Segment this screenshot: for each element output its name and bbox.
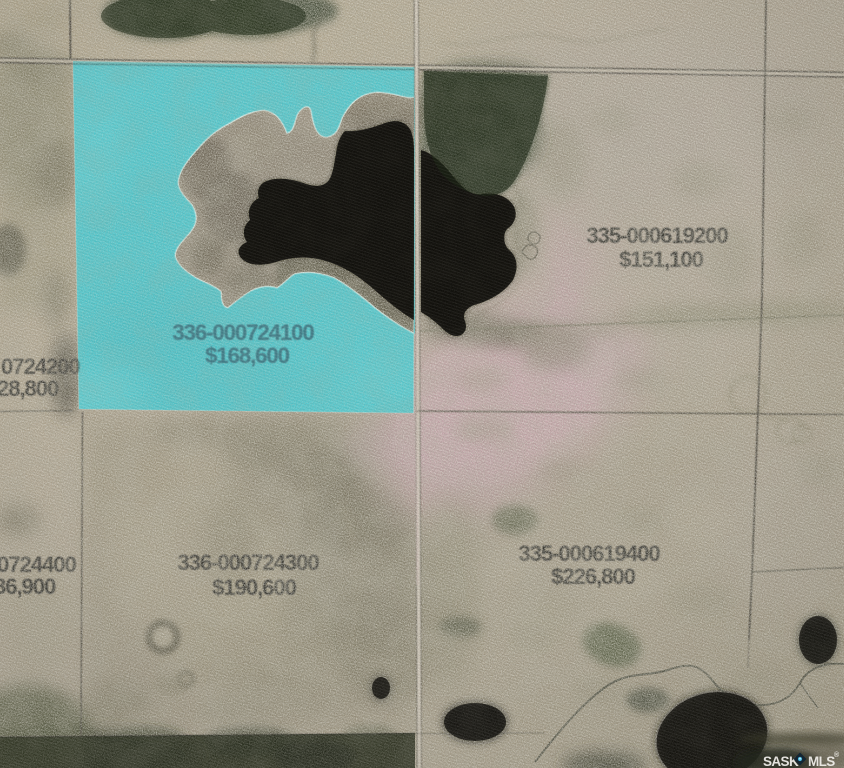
svg-text:®: ® xyxy=(834,751,840,759)
svg-text:SASK: SASK xyxy=(763,754,799,768)
svg-text:MLS: MLS xyxy=(808,754,835,768)
